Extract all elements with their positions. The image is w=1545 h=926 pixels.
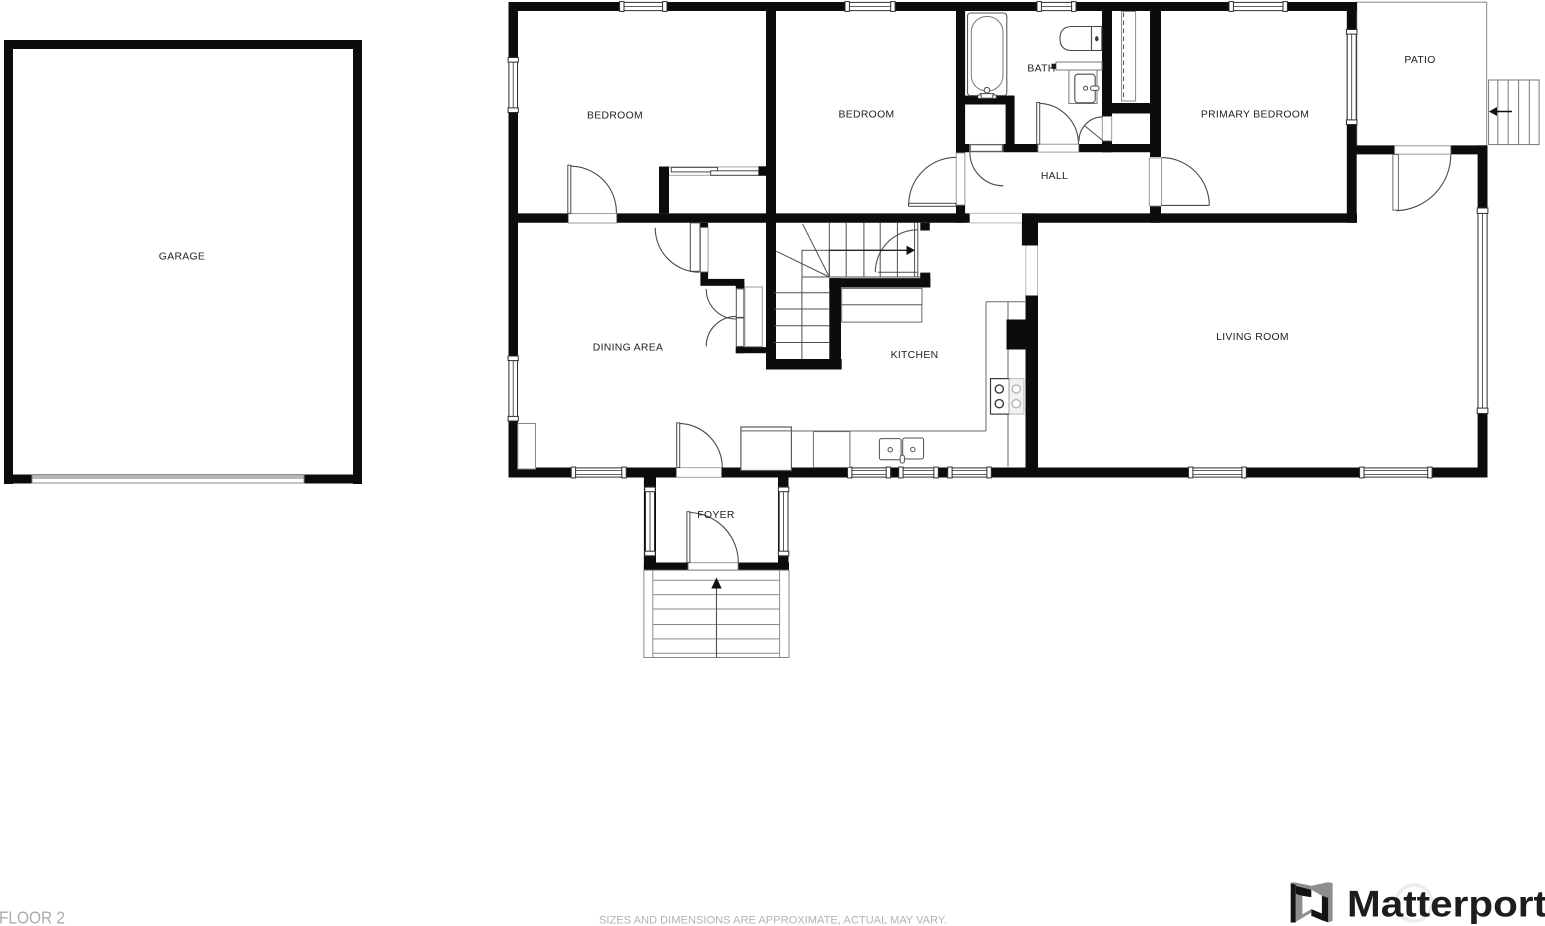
- svg-text:KITCHEN: KITCHEN: [891, 350, 939, 361]
- svg-text:BEDROOM: BEDROOM: [839, 110, 895, 121]
- svg-text:LIVING ROOM: LIVING ROOM: [1216, 332, 1289, 343]
- svg-text:PATIO: PATIO: [1404, 55, 1435, 66]
- svg-text:Matterport: Matterport: [1347, 884, 1545, 925]
- svg-text:SIZES AND DIMENSIONS ARE APPRO: SIZES AND DIMENSIONS ARE APPROXIMATE, AC…: [599, 915, 947, 926]
- svg-text:BATH: BATH: [1027, 64, 1055, 75]
- svg-text:HALL: HALL: [1041, 171, 1068, 182]
- svg-text:DINING AREA: DINING AREA: [593, 343, 664, 354]
- svg-text:FLOOR 2: FLOOR 2: [0, 908, 65, 926]
- svg-text:BEDROOM: BEDROOM: [587, 111, 643, 122]
- svg-text:GARAGE: GARAGE: [159, 252, 205, 263]
- svg-text:FOYER: FOYER: [697, 510, 735, 521]
- svg-text:PRIMARY BEDROOM: PRIMARY BEDROOM: [1201, 110, 1309, 121]
